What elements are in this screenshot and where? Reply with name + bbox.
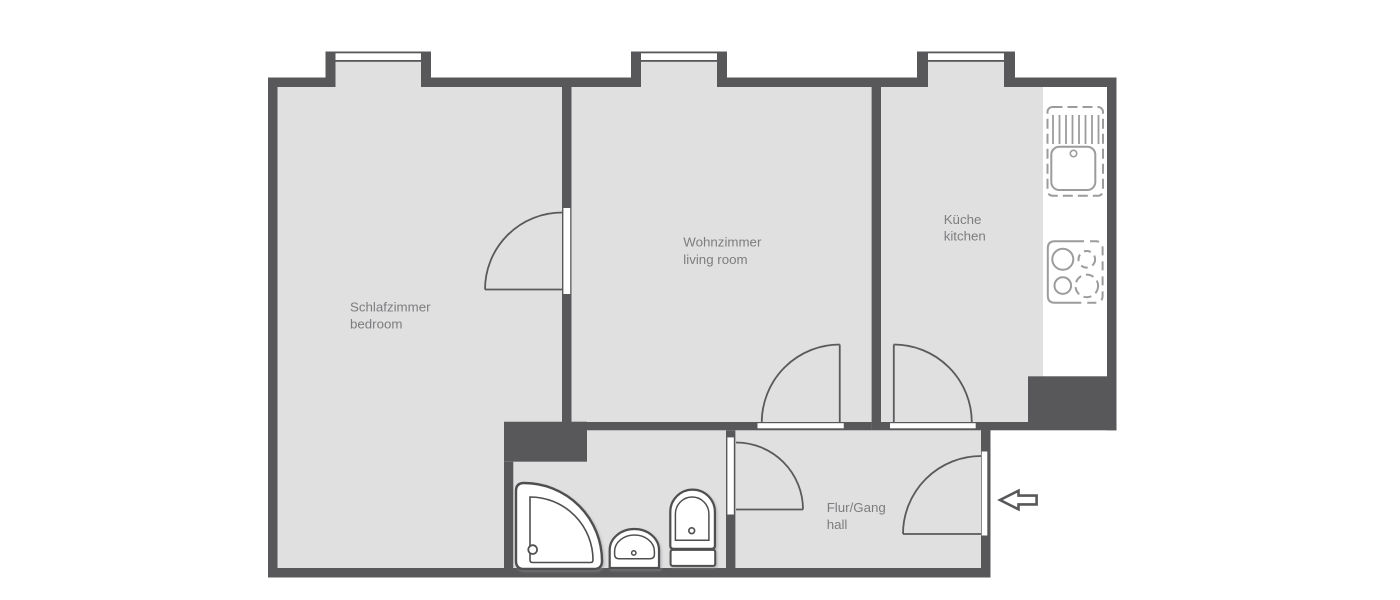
svg-text:kitchen: kitchen [944,228,986,243]
svg-text:Flur/Gang: Flur/Gang [827,500,886,515]
svg-text:bedroom: bedroom [350,317,402,332]
svg-text:Küche: Küche [944,212,982,227]
svg-text:living room: living room [683,252,747,267]
svg-text:Schlafzimmer: Schlafzimmer [350,300,431,315]
svg-text:hall: hall [827,517,848,532]
svg-text:Wohnzimmer: Wohnzimmer [683,234,762,249]
